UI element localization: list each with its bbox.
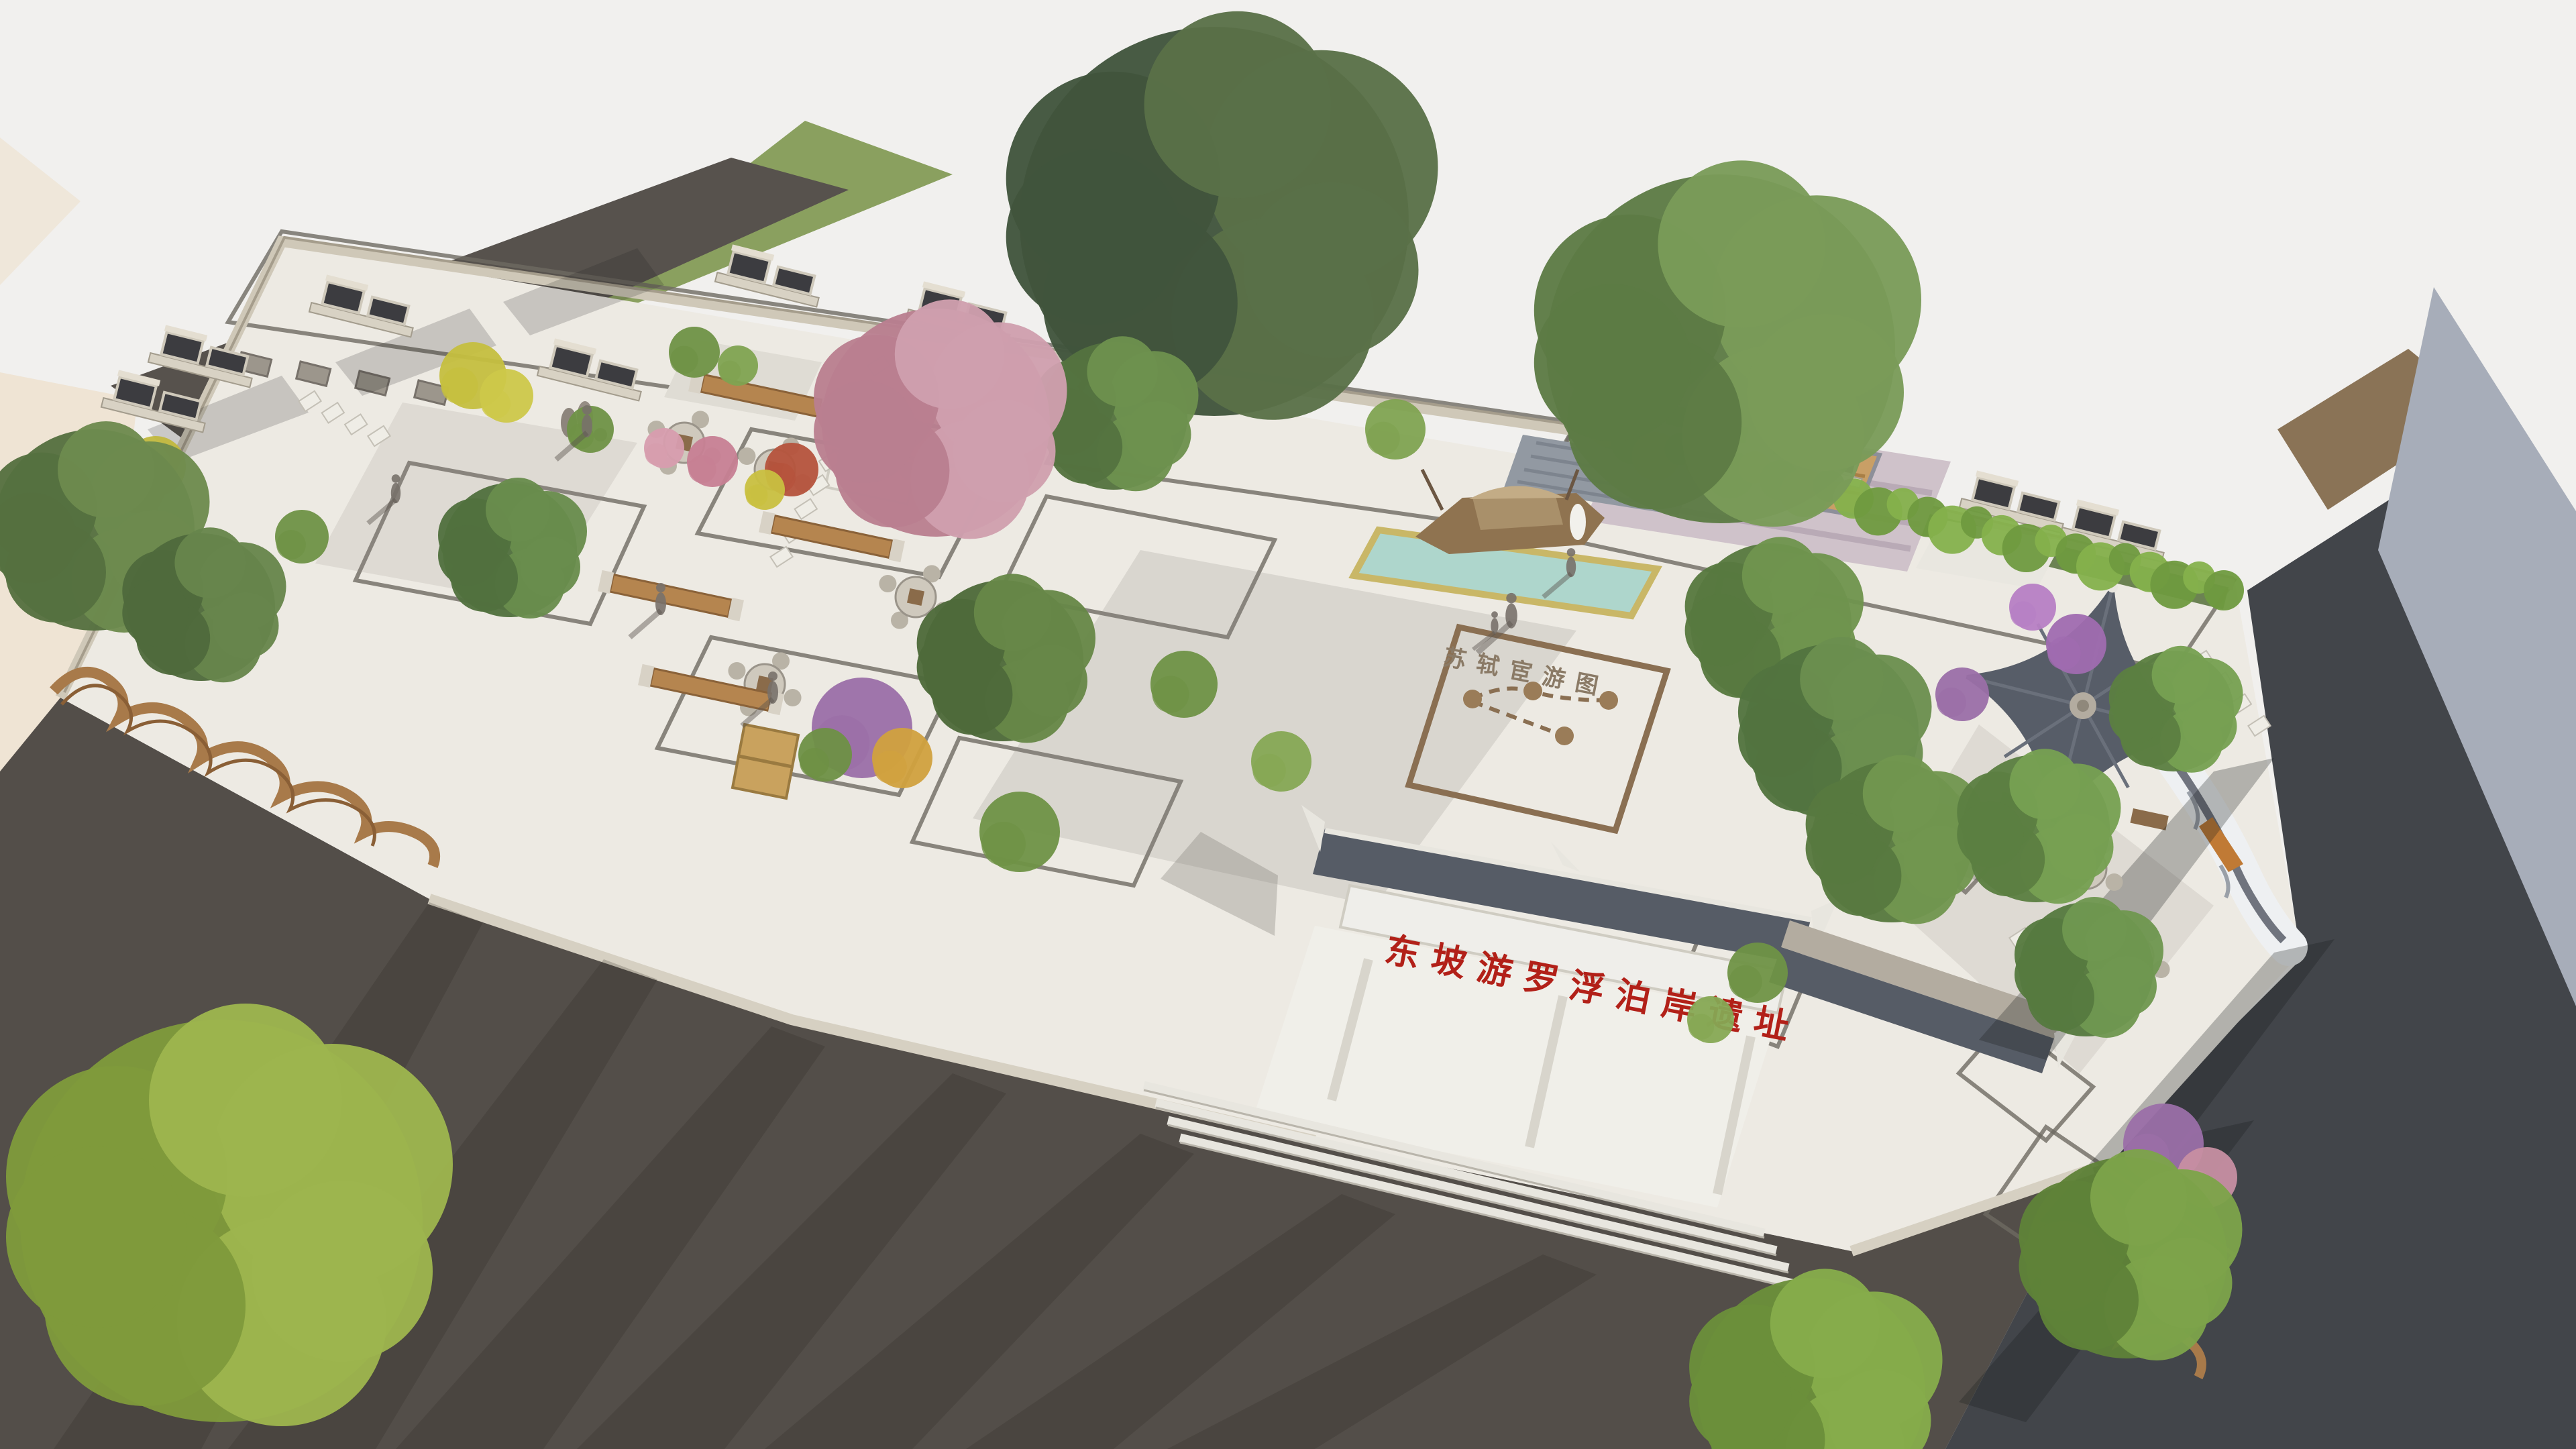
shrub: [719, 361, 741, 383]
tree-canopy: [252, 1181, 433, 1362]
tree-canopy: [1087, 336, 1158, 407]
tree-canopy: [2096, 956, 2157, 1016]
shrub: [276, 530, 306, 559]
shrub: [2047, 637, 2081, 670]
tree-canopy: [1015, 645, 1087, 717]
stone-stool: [784, 689, 802, 706]
person-silhouette: [1491, 611, 1498, 618]
stone-stool: [738, 447, 755, 465]
stone-stool: [728, 662, 745, 680]
tree-canopy: [1534, 284, 1691, 441]
person-silhouette: [1567, 548, 1576, 557]
tree-canopy: [438, 525, 498, 586]
person-silhouette: [1491, 618, 1498, 634]
tree-canopy: [2109, 689, 2163, 743]
shrub: [1366, 422, 1400, 455]
shrub: [670, 346, 698, 374]
tree-canopy: [1689, 1350, 1792, 1449]
shrub: [1937, 688, 1966, 717]
stone-stool: [879, 575, 896, 592]
tree-canopy: [6, 1146, 187, 1328]
bamboo-clump: [2204, 570, 2244, 610]
tree-canopy: [1738, 699, 1817, 777]
tree-canopy: [1244, 182, 1419, 358]
shrub: [1152, 676, 1189, 713]
tree-canopy: [174, 527, 246, 598]
tree-canopy: [1125, 401, 1191, 468]
shrub: [2010, 601, 2037, 627]
tree-canopy: [917, 631, 989, 704]
tree-canopy: [1806, 812, 1878, 885]
route-node: [1463, 690, 1482, 708]
tree-canopy: [1747, 314, 1904, 471]
tree-canopy: [814, 380, 916, 483]
tree-canopy: [1742, 537, 1819, 614]
tree-canopy: [2019, 1221, 2110, 1311]
shrub: [981, 822, 1026, 866]
shrub: [481, 389, 511, 419]
tree-canopy: [58, 421, 154, 518]
tree-canopy: [520, 537, 580, 597]
shrub: [873, 751, 907, 784]
person-silhouette: [392, 474, 400, 483]
tree-canopy: [149, 1004, 342, 1197]
boat-cabin: [1472, 494, 1563, 530]
tree-canopy: [1863, 755, 1940, 832]
tree-canopy: [122, 580, 189, 646]
tree-canopy: [895, 299, 1004, 409]
route-node: [1555, 727, 1574, 745]
tree-canopy: [953, 400, 1056, 502]
tree-canopy: [2183, 699, 2237, 753]
tree-canopy: [2015, 945, 2075, 1005]
shrub: [688, 455, 716, 484]
shrub: [746, 485, 768, 507]
chessboard: [907, 588, 924, 606]
tree-canopy: [2152, 646, 2210, 704]
tree-canopy: [213, 592, 279, 659]
tree-canopy: [1957, 801, 2023, 867]
tree-canopy: [2047, 814, 2114, 880]
stone-stool: [2106, 873, 2123, 891]
tree-canopy: [1770, 1269, 1880, 1378]
tree-canopy: [1800, 637, 1884, 721]
tree-canopy: [974, 574, 1051, 651]
tree-canopy: [2009, 749, 2080, 820]
tree-canopy: [2090, 1149, 2187, 1246]
shrub: [800, 748, 829, 777]
person-silhouette: [582, 405, 592, 415]
tree-canopy: [486, 478, 550, 542]
person-silhouette: [1506, 593, 1516, 603]
person-silhouette: [768, 672, 777, 681]
person-silhouette: [656, 583, 665, 592]
shrub: [1729, 965, 1762, 999]
shrub: [1252, 754, 1286, 788]
tree-canopy: [2142, 1238, 2233, 1328]
info-kiosk: [733, 724, 798, 798]
poet-statue: [1570, 504, 1586, 540]
rendering-canvas: 苏轼宦游图 东坡游罗浮泊岸遗址: [0, 0, 2576, 1449]
shrub: [1688, 1014, 1715, 1040]
tree-canopy: [2062, 897, 2127, 961]
tree-canopy: [1685, 594, 1758, 667]
aerial-render: 苏轼宦游图 东坡游罗浮泊岸遗址: [0, 0, 2576, 1449]
shrub: [645, 443, 667, 466]
tree-canopy: [1144, 11, 1331, 198]
tree-canopy: [1006, 150, 1181, 325]
tree-canopy: [1658, 160, 1825, 328]
shrub: [441, 368, 478, 405]
